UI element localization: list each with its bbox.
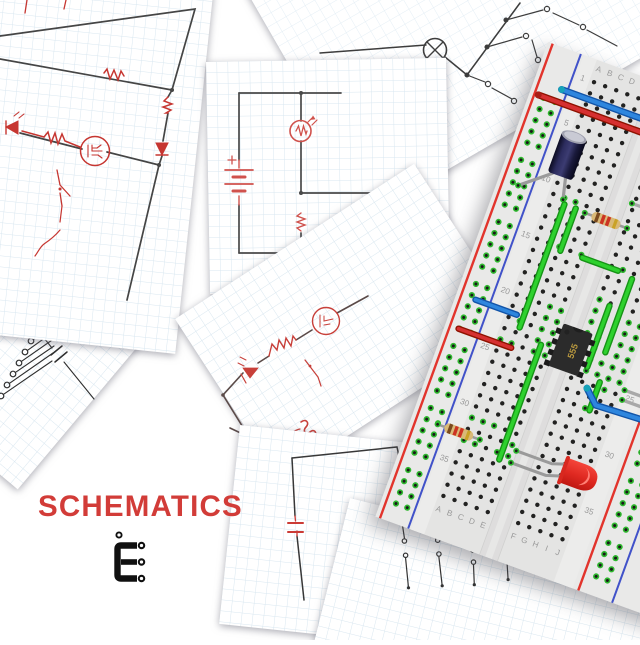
svg-text:SCHEMATICS: SCHEMATICS: [38, 490, 243, 523]
